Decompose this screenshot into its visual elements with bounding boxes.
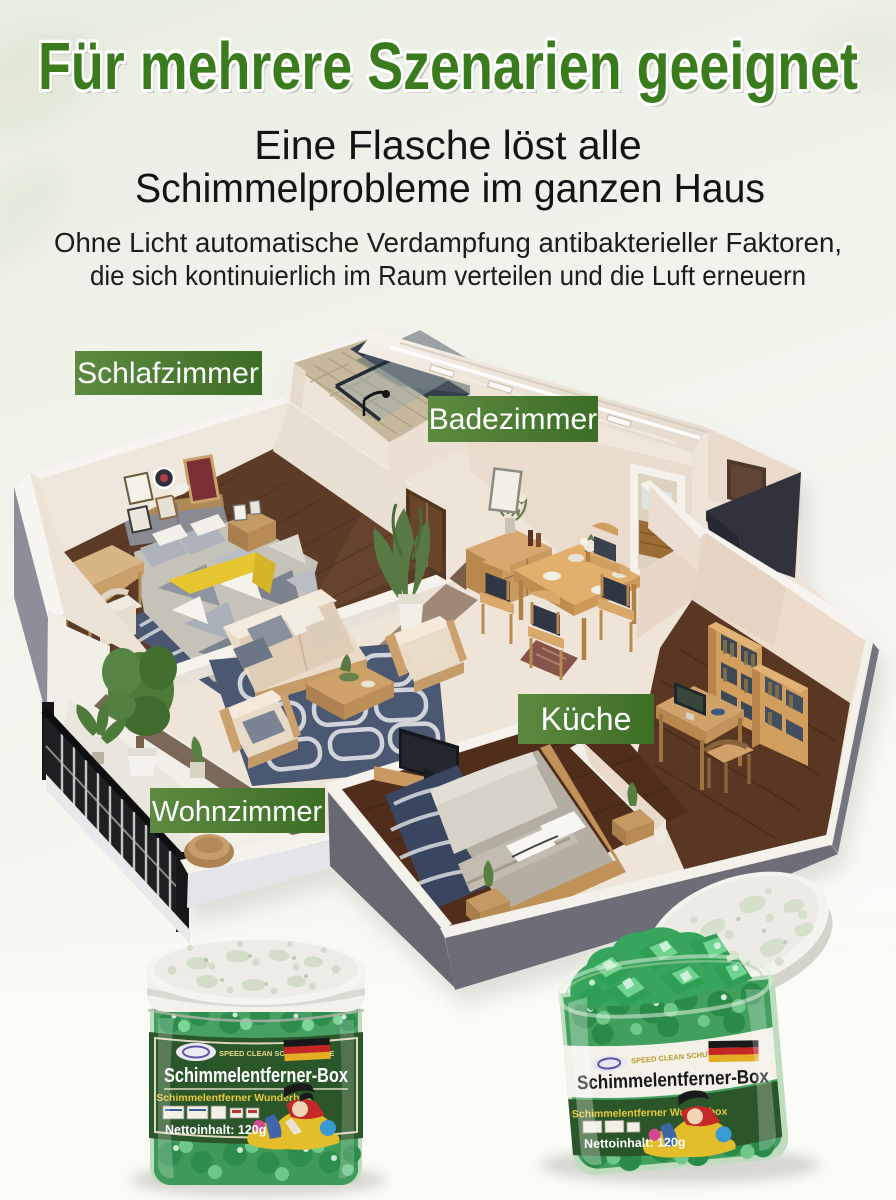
svg-text:Schlafzimmer: Schlafzimmer [77,357,259,390]
svg-text:Schimmelprobleme im ganzen Hau: Schimmelprobleme im ganzen Haus [135,165,765,211]
svg-text:die sich kontinuierlich im Rau: die sich kontinuierlich im Raum verteile… [90,260,806,291]
svg-text:Wohnzimmer: Wohnzimmer [152,796,323,828]
svg-text:Ohne Licht automatische Verdam: Ohne Licht automatische Verdampfung anti… [54,227,842,258]
svg-text:Für mehrere Szenarien geeignet: Für mehrere Szenarien geeignet [38,29,858,104]
svg-text:Schimmelentferner-Box: Schimmelentferner-Box [164,1065,348,1087]
svg-text:Badezimmer: Badezimmer [429,403,597,436]
svg-text:Nettoinhalt: 120g: Nettoinhalt: 120g [584,1135,686,1151]
svg-text:Küche: Küche [541,701,632,737]
svg-text:Nettoinhalt: 120g: Nettoinhalt: 120g [165,1123,266,1137]
svg-text:Eine Flasche löst alle: Eine Flasche löst alle [254,122,641,168]
